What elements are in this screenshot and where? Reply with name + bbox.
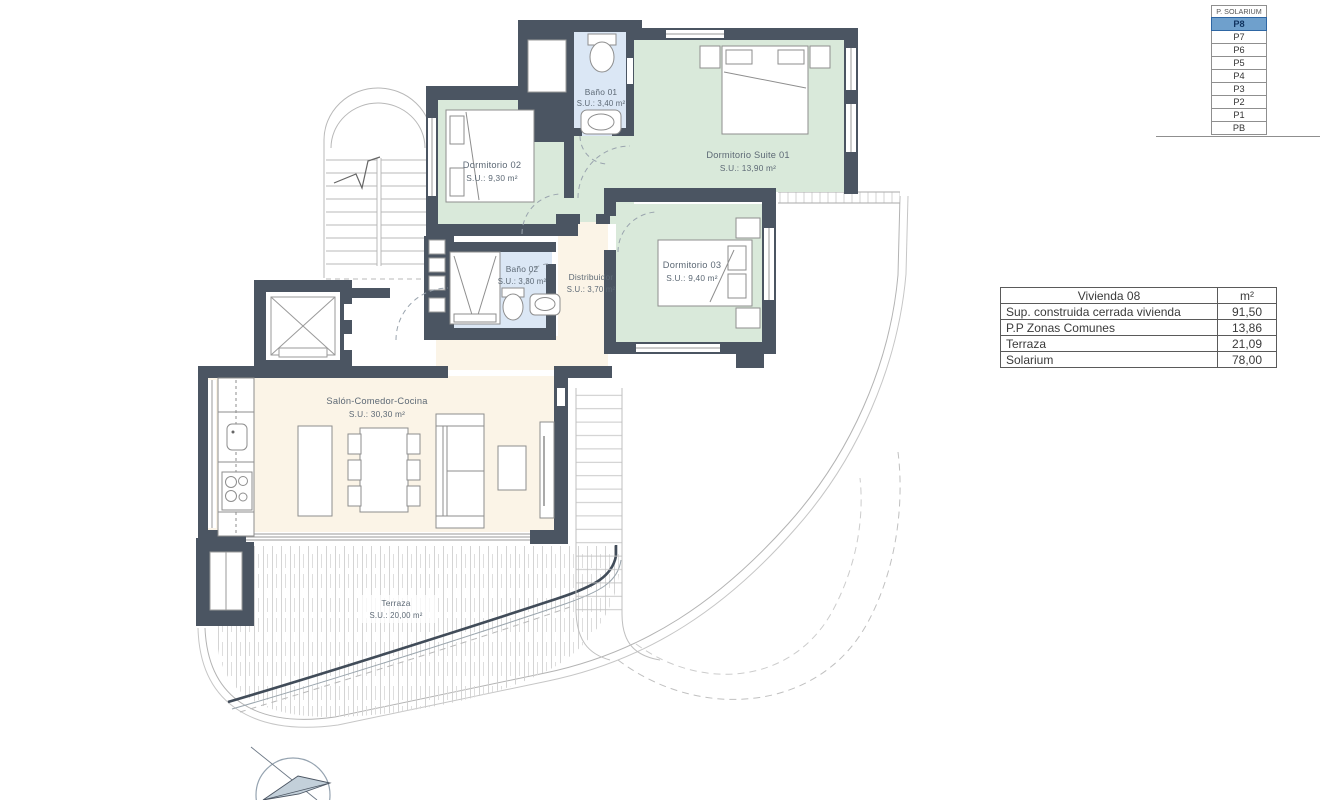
area-table-header: Vivienda 08 m² xyxy=(1001,288,1277,304)
area-table-row: P.P Zonas Comunes13,86 xyxy=(1001,320,1277,336)
floor-row-P4[interactable]: P4 xyxy=(1211,69,1267,83)
label-terraza-name: Terraza xyxy=(381,598,410,608)
label-terraza-area: S.U.: 20,00 m² xyxy=(369,611,422,620)
tv-unit xyxy=(540,422,554,518)
label-suite01-area: S.U.: 13,90 m² xyxy=(720,163,776,173)
floor-row-P7[interactable]: P7 xyxy=(1211,30,1267,44)
closet xyxy=(528,40,566,92)
label-bano02-area: S.U.: 3,30 m² xyxy=(498,277,547,286)
stairwell xyxy=(324,88,432,279)
nightstand xyxy=(736,218,760,238)
floor-row-P3[interactable]: P3 xyxy=(1211,82,1267,96)
area-row-value: 91,50 xyxy=(1218,304,1277,320)
label-salon-area: S.U.: 30,30 m² xyxy=(349,409,405,419)
floor-row-P1[interactable]: P1 xyxy=(1211,108,1267,122)
area-table-row: Terraza21,09 xyxy=(1001,336,1277,352)
suite-terrace-railing xyxy=(778,192,900,203)
terrace-decking xyxy=(210,545,621,717)
area-row-label: Solarium xyxy=(1001,352,1218,368)
area-summary-table: Vivienda 08 m² Sup. construida cerrada v… xyxy=(1000,287,1277,368)
label-dorm02-area: S.U.: 9,30 m² xyxy=(466,173,518,183)
shower xyxy=(450,252,500,324)
area-table-row: Sup. construida cerrada vivienda91,50 xyxy=(1001,304,1277,320)
floor-selector-rows: P8P7P6P5P4P3P2P1PB xyxy=(1211,17,1267,135)
kitchen-island xyxy=(298,426,332,516)
chair xyxy=(407,486,420,506)
floor-row-P5[interactable]: P5 xyxy=(1211,56,1267,70)
label-bano01-area: S.U.: 3,40 m² xyxy=(577,99,626,108)
area-row-value: 13,86 xyxy=(1218,320,1277,336)
nightstand xyxy=(736,308,760,328)
nightstand xyxy=(700,46,720,68)
elevator xyxy=(254,280,353,372)
floor-level-selector: P. SOLARIUM P8P7P6P5P4P3P2P1PB xyxy=(1211,5,1267,135)
floor-row-PB[interactable]: PB xyxy=(1211,121,1267,135)
nightstand xyxy=(810,46,830,68)
chair xyxy=(348,460,361,480)
label-suite01-name: Dormitorio Suite 01 xyxy=(706,150,789,160)
label-bano02-name: Baño 02 xyxy=(506,264,539,274)
table-unit: m² xyxy=(1218,288,1277,304)
area-table-row: Solarium78,00 xyxy=(1001,352,1277,368)
kitchen-sink xyxy=(227,424,247,450)
dining-table xyxy=(360,428,408,512)
floorplan-page: Baño 01 S.U.: 3,40 m² Dormitorio 02 S.U.… xyxy=(0,0,1320,800)
floor-row-P6[interactable]: P6 xyxy=(1211,43,1267,57)
chair xyxy=(407,460,420,480)
area-row-label: Terraza xyxy=(1001,336,1218,352)
area-row-value: 21,09 xyxy=(1218,336,1277,352)
label-distribuidor-name: Distribuidor xyxy=(569,272,614,282)
label-distribuidor-area: S.U.: 3,70 m² xyxy=(567,285,616,294)
area-row-label: Sup. construida cerrada vivienda xyxy=(1001,304,1218,320)
label-dorm03-area: S.U.: 9,40 m² xyxy=(666,273,718,283)
hallway xyxy=(436,336,608,370)
chair xyxy=(348,434,361,454)
floor-selector-baseline xyxy=(1156,136,1320,137)
coffee-table xyxy=(498,446,526,490)
table-title: Vivienda 08 xyxy=(1001,288,1218,304)
stair-treads xyxy=(326,158,430,266)
floor-plan: Baño 01 S.U.: 3,40 m² Dormitorio 02 S.U.… xyxy=(0,0,1320,800)
floor-row-P8[interactable]: P8 xyxy=(1211,17,1267,31)
chair xyxy=(348,486,361,506)
label-dorm03-name: Dormitorio 03 xyxy=(663,260,721,270)
floor-row-P2[interactable]: P2 xyxy=(1211,95,1267,109)
label-salon-name: Salón-Comedor-Cocina xyxy=(326,396,428,406)
label-bano01-name: Baño 01 xyxy=(585,87,618,97)
label-dorm02-name: Dormitorio 02 xyxy=(463,160,521,170)
chair xyxy=(407,434,420,454)
area-row-label: P.P Zonas Comunes xyxy=(1001,320,1218,336)
stove xyxy=(222,472,252,510)
compass-icon xyxy=(251,747,330,800)
area-row-value: 78,00 xyxy=(1218,352,1277,368)
